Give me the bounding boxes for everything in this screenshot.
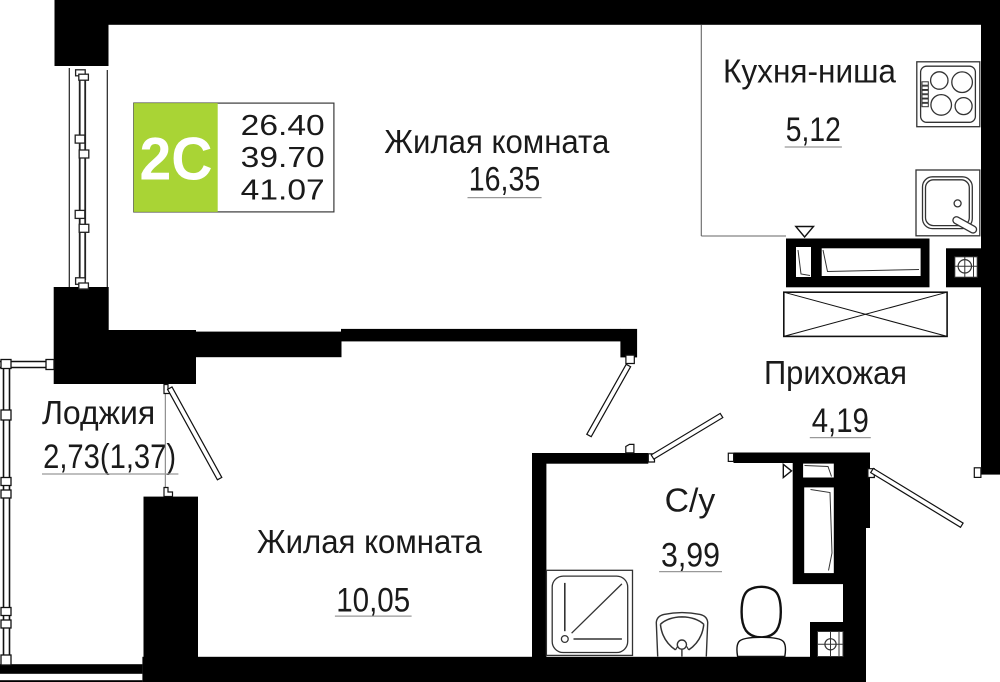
svg-text:Кухня-ниша: Кухня-ниша xyxy=(723,53,897,90)
svg-text:Лоджия: Лоджия xyxy=(42,394,155,431)
svg-text:4,19: 4,19 xyxy=(812,402,869,440)
svg-text:39.70: 39.70 xyxy=(241,142,325,174)
svg-text:10,05: 10,05 xyxy=(336,581,410,619)
svg-text:3,99: 3,99 xyxy=(661,537,720,575)
svg-text:Прихожая: Прихожая xyxy=(764,354,907,391)
svg-text:2,73(1,37): 2,73(1,37) xyxy=(43,438,176,476)
svg-text:41.07: 41.07 xyxy=(241,174,325,206)
svg-text:16,35: 16,35 xyxy=(469,161,541,199)
svg-text:Жилая комната: Жилая комната xyxy=(384,123,610,160)
svg-text:Жилая комната: Жилая комната xyxy=(257,523,483,560)
svg-text:2C: 2C xyxy=(140,126,213,193)
svg-text:26.40: 26.40 xyxy=(241,110,325,142)
svg-text:С/у: С/у xyxy=(665,482,716,519)
svg-text:5,12: 5,12 xyxy=(786,111,841,149)
